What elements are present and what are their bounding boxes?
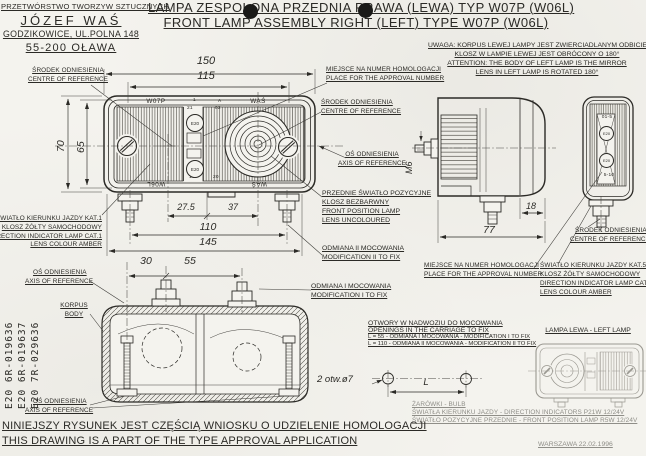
dim-110: 110 <box>192 222 224 234</box>
indicator-cat1-line1: ŚWIATŁO KIERUNKU JAZDY KAT.1 <box>0 215 102 222</box>
attention-note-pl-1: UWAGA: KORPUS LEWEJ LAMPY JEST ZWIERCIAD… <box>428 42 646 50</box>
company-name: JÓZEF WAŚ <box>8 14 134 29</box>
approval-place-2-en: PLACE FOR THE APPROVAL NUMBER <box>424 271 542 278</box>
holes-note: 2 otw.ø7 <box>317 375 353 386</box>
type-marking-w06l-rotated: W06L <box>142 180 170 187</box>
left-lamp-view <box>528 344 646 407</box>
indicator-cat1-line4: LENS COLOUR AMBER <box>0 241 102 248</box>
hole-punch-mark <box>243 4 258 19</box>
dim-115: 115 <box>188 70 224 82</box>
centre-of-reference-3-en: CENTRE OF REFERENCE <box>570 236 646 243</box>
position-lamp-line3: FRONT POSITION LAMP <box>322 208 400 216</box>
modification-1-pl: ODMIANA I MOCOWANIA <box>311 283 391 291</box>
hole-punch-mark <box>358 3 373 18</box>
indicator-cat1-line3: DIRECTION INDICATOR LAMP CAT.1 <box>0 233 102 240</box>
side-bottom-bolt <box>480 196 505 224</box>
axis-of-reference-2-en: AXIS OF REFERENCE <box>25 278 93 285</box>
centre-of-reference-2-en: CENTRE OF REFERENCE <box>321 108 401 115</box>
e20-approval-circle: E20 <box>186 114 204 132</box>
attention-note-pl-2: KLOSZ W LAMPIE LEWEJ JEST OBRÓCONY O 180… <box>428 51 646 59</box>
approval-place-2-pl: MIEJSCE NA NUMER HOMOLOGACJI <box>424 262 539 269</box>
centre-of-reference-2-pl: ŚRODEK ODNIESIENIA <box>321 99 393 106</box>
indicator-cat5-line2: KLOSZ ŻÓŁTY SAMOCHODOWY <box>540 271 640 278</box>
approval-number-2: E20 6R-019637 <box>18 322 29 409</box>
approval-number-3: E20 7R-029636 <box>31 322 42 409</box>
company-address: GODZIKOWICE, UL.POLNA 148 <box>0 30 142 40</box>
dim-145: 145 <box>192 237 224 249</box>
dim-77: 77 <box>478 225 500 237</box>
attention-note-en-2: LENS IN LEFT LAMP IS ROTATED 180° <box>428 69 646 77</box>
openings-line3: L = 55 - ODMIANA I MOCOWANIA - MODIFICAT… <box>368 334 530 341</box>
axis-of-reference-2-pl: OŚ ODNIESIENIA <box>33 269 87 276</box>
dim-27-5: 27.5 <box>172 202 200 212</box>
axis-of-reference-1-pl: OŚ ODNIESIENIA <box>334 151 410 158</box>
dim-65: 65 <box>76 141 88 153</box>
modification-2-en: MODIFICATION II TO FIX <box>322 254 400 262</box>
attention-note-en-1: ATTENTION: THE BODY OF LEFT LAMP IS THE … <box>428 60 646 68</box>
approval-place-1-en: PLACE FOR THE APPROVAL NUMBER <box>326 75 444 82</box>
dim-37: 37 <box>221 202 245 212</box>
dim-55: 55 <box>178 256 202 268</box>
modification-2-pl: ODMIANA II MOCOWANIA <box>322 245 404 253</box>
technical-drawing-sheet: PRZETWÓRSTWO TWORZYW SZTUCZNYCH JÓZEF WA… <box>0 0 646 456</box>
position-lamp-line4: LENS UNCOLOURED <box>322 217 390 225</box>
left-lamp-caption: LAMPA LEWA - LEFT LAMP <box>542 327 634 335</box>
rear-marking-01-5: 01-5 <box>597 115 617 120</box>
modification-1-en: MODIFICATION I TO FIX <box>311 292 387 300</box>
e20-approval-circle: E20 <box>186 160 204 178</box>
footer-statement-en: THIS DRAWING IS A PART OF THE TYPE APPRO… <box>2 435 357 447</box>
indicator-cat5-line4: LENS COLOUR AMBER <box>540 289 612 296</box>
drawing-title-en: FRONT LAMP ASSEMBLY RIGHT (LEFT) TYPE W0… <box>148 16 564 31</box>
bulbs-title: ŻARÓWKI - BULB <box>412 401 466 408</box>
centre-of-reference-1-pl: ŚRODEK ODNIESIENIA <box>20 67 116 74</box>
marking-1: 1 <box>193 98 196 103</box>
front-view <box>104 96 315 222</box>
e20-mark: E20 <box>603 131 610 136</box>
footer-statement-pl: NINIEJSZY RYSUNEK JEST CZĘŚCIĄ WNIOSKU O… <box>2 420 427 432</box>
axis-of-reference-3-pl: OŚ ODNIESIENIA <box>33 398 87 405</box>
approval-place-1-pl: MIEJSCE NA NUMER HOMOLOGACJI <box>326 66 441 73</box>
marking-21: 21 <box>187 106 193 111</box>
dim-30: 30 <box>134 256 158 268</box>
e20-mark: E20 <box>191 167 199 172</box>
bulbs-indicators: ŚWIATŁA KIERUNKU JAZDY - DIRECTION INDIC… <box>412 409 624 416</box>
body-label-en: BODY <box>57 311 91 318</box>
e20-mark: E20 <box>191 121 199 126</box>
place-and-date: WARSZAWA 22.02.1996 <box>538 441 613 449</box>
brand-marking-was: WAŚ <box>245 98 271 105</box>
body-label-pl: KORPUS <box>57 302 91 309</box>
axis-of-reference-3-en: AXIS OF REFERENCE <box>25 407 93 414</box>
marking-02: 02 <box>215 106 221 111</box>
company-city: 55-200 OŁAWA <box>18 42 124 54</box>
rear-marking-5-10: 5-10 <box>599 173 619 178</box>
dim-70: 70 <box>56 140 68 152</box>
e20-approval-circle: E20 <box>599 126 614 141</box>
dim-L: L <box>419 378 433 389</box>
company-industry-line: PRZETWÓRSTWO TWORZYW SZTUCZNYCH <box>1 3 143 12</box>
marking-a: A <box>218 99 221 104</box>
centre-of-reference-3-pl: ŚRODEK ODNIESIENIA <box>575 227 646 234</box>
position-lamp-line2: KLOSZ BEZBARWNY <box>322 199 389 207</box>
cross-section-view <box>102 280 308 402</box>
e20-mark: E20 <box>603 158 610 163</box>
m6-adjust-bolt <box>415 131 438 158</box>
position-lamp-line1: PRZEDNIE ŚWIATŁO POZYCYJNE <box>322 190 431 198</box>
indicator-cat5-line1: ŚWIATŁO KIERUNKU JAZDY KAT.5 <box>540 262 646 269</box>
axis-of-reference-1-en: AXIS OF REFERENCE <box>329 160 415 167</box>
indicator-cat5-line3: DIRECTION INDICATOR LAMP CAT.5 <box>540 280 646 287</box>
indicator-cat1-line2: KLOSZ ŻÓŁTY SAMOCHODOWY <box>0 224 102 231</box>
drawing-title-pl: LAMPA ZESPOLONA PRZEDNIA PRAWA (LEWA) TY… <box>148 1 564 16</box>
dim-150: 150 <box>188 55 224 67</box>
dim-18: 18 <box>521 201 541 211</box>
centre-of-reference-1-en: CENTRE OF REFERENCE <box>16 76 120 83</box>
type-marking-w07p: W07P <box>141 98 171 105</box>
brand-marking-was-rotated: WAŚ <box>246 180 272 187</box>
marking-20: 20 <box>213 175 219 180</box>
openings-line4: L = 110 - ODMIANA II MOCOWANIA - MODIFIC… <box>368 341 536 348</box>
approval-number-1: E20 6R-019636 <box>5 322 16 409</box>
e20-approval-circle: E20 <box>599 153 614 168</box>
bulbs-position: ŚWIATŁO POZYCYJNE PRZEDNIE - FRONT POSIT… <box>412 417 637 424</box>
